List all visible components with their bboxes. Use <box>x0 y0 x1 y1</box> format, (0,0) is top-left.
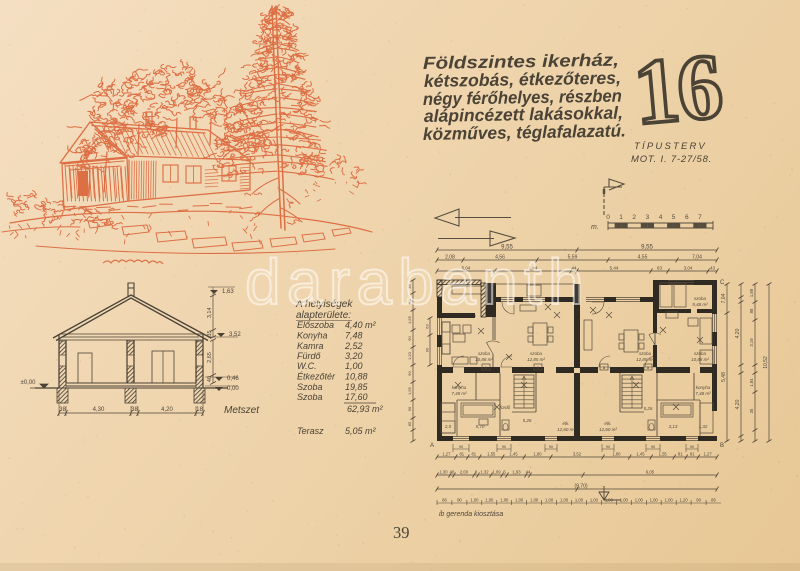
svg-text:5,05 m²: 5,05 m² <box>345 426 377 436</box>
svg-text:12,60 m²: 12,60 m² <box>557 427 575 432</box>
svg-text:4,20: 4,20 <box>735 399 741 409</box>
svg-text:darabanth: darabanth <box>245 246 590 318</box>
svg-text:TÍPUSTERV: TÍPUSTERV <box>634 141 707 152</box>
svg-text:4,40 m²: 4,40 m² <box>345 320 377 330</box>
svg-text:1,00: 1,00 <box>635 498 644 503</box>
svg-text:szoba: szoba <box>530 351 543 356</box>
svg-text:12,85 m²: 12,85 m² <box>636 357 654 362</box>
svg-text:10,88 m²: 10,88 m² <box>691 357 709 362</box>
svg-text:81: 81 <box>678 452 683 457</box>
svg-text:90: 90 <box>459 445 463 449</box>
svg-text:Terasz: Terasz <box>297 426 324 436</box>
svg-text:3: 3 <box>646 214 650 221</box>
svg-text:1,00: 1,00 <box>590 498 599 503</box>
svg-text:1,80: 1,80 <box>533 452 542 457</box>
svg-text:1,00: 1,00 <box>650 498 659 503</box>
svg-text:16: 16 <box>630 34 725 145</box>
svg-text:38: 38 <box>59 407 66 413</box>
svg-text:9,55: 9,55 <box>641 245 653 251</box>
svg-text:4: 4 <box>659 214 663 221</box>
svg-text:1,00: 1,00 <box>620 498 629 503</box>
svg-text:10,88 m²: 10,88 m² <box>475 357 493 362</box>
svg-text:81: 81 <box>459 452 464 457</box>
svg-text:85: 85 <box>407 421 412 426</box>
svg-text:90: 90 <box>407 406 412 411</box>
svg-text:Metszet: Metszet <box>224 405 260 416</box>
svg-text:Fürdő: Fürdő <box>297 351 322 361</box>
svg-text:5,70: 5,70 <box>476 424 485 429</box>
svg-text:2: 2 <box>632 214 636 221</box>
svg-text:1,30: 1,30 <box>439 470 448 475</box>
svg-text:étk.: étk. <box>604 421 611 426</box>
svg-text:Konyha: Konyha <box>297 331 328 341</box>
svg-text:szoba: szoba <box>694 351 707 356</box>
svg-text:1,00: 1,00 <box>665 498 674 503</box>
svg-text:1,00: 1,00 <box>470 498 479 503</box>
svg-text:B: B <box>720 443 724 449</box>
svg-text:5: 5 <box>503 470 506 475</box>
svg-text:1,45: 1,45 <box>509 452 518 457</box>
svg-text:fürdő: fürdő <box>500 405 511 410</box>
svg-text:90: 90 <box>425 347 430 352</box>
svg-text:5,48: 5,48 <box>721 372 727 382</box>
svg-text:±0,00: ±0,00 <box>21 380 37 386</box>
svg-text:1,55: 1,55 <box>659 452 668 457</box>
svg-text:1,00: 1,00 <box>500 498 509 503</box>
svg-text:5: 5 <box>672 214 676 221</box>
svg-text:4,30: 4,30 <box>93 407 105 413</box>
svg-text:1,20: 1,20 <box>680 498 689 503</box>
svg-text:90: 90 <box>549 445 553 449</box>
svg-text:W.C.: W.C. <box>297 361 317 371</box>
svg-text:8: 8 <box>475 470 478 475</box>
svg-text:5,26: 5,26 <box>644 406 653 411</box>
svg-text:90: 90 <box>651 445 655 449</box>
svg-text:1,32: 1,32 <box>699 424 708 429</box>
svg-text:szoba: szoba <box>694 296 707 301</box>
svg-text:90: 90 <box>457 498 462 503</box>
svg-text:12,85 m²: 12,85 m² <box>527 357 545 362</box>
svg-text:1,63: 1,63 <box>222 289 234 295</box>
svg-text:81: 81 <box>471 452 476 457</box>
svg-text:7: 7 <box>698 214 702 221</box>
svg-text:6,05: 6,05 <box>646 470 655 475</box>
svg-text:3,52: 3,52 <box>573 452 582 457</box>
svg-text:6: 6 <box>685 214 689 221</box>
svg-text:1,27: 1,27 <box>704 452 713 457</box>
svg-text:2,65: 2,65 <box>207 352 213 363</box>
svg-text:90: 90 <box>606 445 610 449</box>
svg-text:12,60 m²: 12,60 m² <box>599 427 617 432</box>
svg-text:1,20: 1,20 <box>407 351 412 360</box>
svg-text:(9,70): (9,70) <box>574 484 587 490</box>
svg-text:4,20: 4,20 <box>161 407 173 413</box>
svg-text:39: 39 <box>393 523 410 542</box>
svg-text:2,52: 2,52 <box>344 341 363 351</box>
svg-text:1,00: 1,00 <box>545 498 554 503</box>
svg-text:19,85: 19,85 <box>345 382 369 392</box>
svg-text:1,84: 1,84 <box>749 378 754 387</box>
svg-text:90: 90 <box>696 498 701 503</box>
svg-text:1,45: 1,45 <box>636 452 645 457</box>
svg-text:1,00: 1,00 <box>575 498 584 503</box>
svg-text:2,0: 2,0 <box>444 424 452 429</box>
svg-text:7,48: 7,48 <box>345 331 363 341</box>
svg-text:43: 43 <box>710 266 716 271</box>
svg-text:1,55: 1,55 <box>487 452 496 457</box>
svg-text:Szoba: Szoba <box>297 382 323 392</box>
svg-text:2,00: 2,00 <box>460 470 469 475</box>
svg-text:40: 40 <box>450 470 455 475</box>
svg-text:1,00: 1,00 <box>485 498 494 503</box>
svg-text:86: 86 <box>711 498 716 503</box>
svg-text:0,00: 0,00 <box>227 386 239 392</box>
svg-text:ib gerenda kiosztása: ib gerenda kiosztása <box>439 511 503 518</box>
svg-text:szoba: szoba <box>639 351 652 356</box>
svg-text:90: 90 <box>690 445 694 449</box>
svg-text:4,20: 4,20 <box>735 328 741 338</box>
svg-text:MOT. I. 7-27/58.: MOT. I. 7-27/58. <box>631 154 712 165</box>
svg-text:közműves, téglafalazatú.: közműves, téglafalazatú. <box>423 120 626 144</box>
svg-text:3,19: 3,19 <box>749 338 754 347</box>
svg-text:3,20: 3,20 <box>345 351 363 361</box>
svg-text:1,00: 1,00 <box>560 498 569 503</box>
svg-text:1,00: 1,00 <box>515 498 524 503</box>
svg-text:7,48 m²: 7,48 m² <box>451 391 467 396</box>
svg-text:63: 63 <box>425 324 430 329</box>
svg-text:62,93 m²: 62,93 m² <box>347 404 384 414</box>
svg-text:Kamra: Kamra <box>297 341 324 351</box>
svg-text:konyha: konyha <box>696 385 711 390</box>
svg-text:7,04: 7,04 <box>721 293 727 303</box>
svg-text:44: 44 <box>526 470 531 475</box>
svg-text:63: 63 <box>657 266 663 271</box>
svg-text:7,48 m²: 7,48 m² <box>695 391 711 396</box>
svg-text:10,88: 10,88 <box>345 372 368 382</box>
svg-text:5,44: 5,44 <box>610 266 619 271</box>
svg-text:1,27: 1,27 <box>442 452 451 457</box>
svg-text:3,14: 3,14 <box>207 307 213 318</box>
svg-text:3,04: 3,04 <box>684 266 693 271</box>
svg-text:17,60: 17,60 <box>345 392 368 402</box>
svg-text:1,00: 1,00 <box>530 498 539 503</box>
svg-text:m.: m. <box>591 224 599 231</box>
svg-text:0: 0 <box>606 214 610 221</box>
svg-text:1: 1 <box>619 214 623 221</box>
svg-text:Étkezőtér: Étkezőtér <box>297 372 336 382</box>
svg-text:1,00: 1,00 <box>345 361 363 371</box>
svg-text:90: 90 <box>502 445 506 449</box>
svg-text:90: 90 <box>407 371 412 376</box>
svg-text:18: 18 <box>196 407 203 413</box>
svg-text:90: 90 <box>407 336 412 341</box>
svg-text:9,48 m²: 9,48 m² <box>692 302 708 307</box>
svg-text:szoba: szoba <box>478 351 491 356</box>
svg-text:a: a <box>603 365 606 370</box>
svg-text:1,93: 1,93 <box>512 470 521 475</box>
svg-text:81: 81 <box>690 452 695 457</box>
svg-text:konyha: konyha <box>452 385 467 390</box>
svg-text:1,32: 1,32 <box>480 470 489 475</box>
svg-text:1,80: 1,80 <box>612 452 621 457</box>
svg-text:étk.: étk. <box>562 421 569 426</box>
svg-text:A: A <box>430 443 434 449</box>
svg-text:88: 88 <box>749 308 754 313</box>
svg-text:7,04: 7,04 <box>692 255 702 261</box>
svg-text:1,55: 1,55 <box>407 386 412 395</box>
svg-text:5,26: 5,26 <box>523 418 532 423</box>
svg-text:C: C <box>720 280 725 286</box>
svg-text:86: 86 <box>442 498 447 503</box>
svg-text:1,88: 1,88 <box>749 288 754 297</box>
svg-text:35: 35 <box>749 408 754 413</box>
svg-text:Szoba: Szoba <box>297 392 323 402</box>
svg-text:1,09: 1,09 <box>492 470 501 475</box>
svg-text:Előszoba: Előszoba <box>297 320 334 330</box>
svg-text:a: a <box>647 365 650 370</box>
svg-text:38: 38 <box>131 407 138 413</box>
svg-text:3,13: 3,13 <box>669 424 678 429</box>
svg-text:4,55: 4,55 <box>638 255 648 261</box>
